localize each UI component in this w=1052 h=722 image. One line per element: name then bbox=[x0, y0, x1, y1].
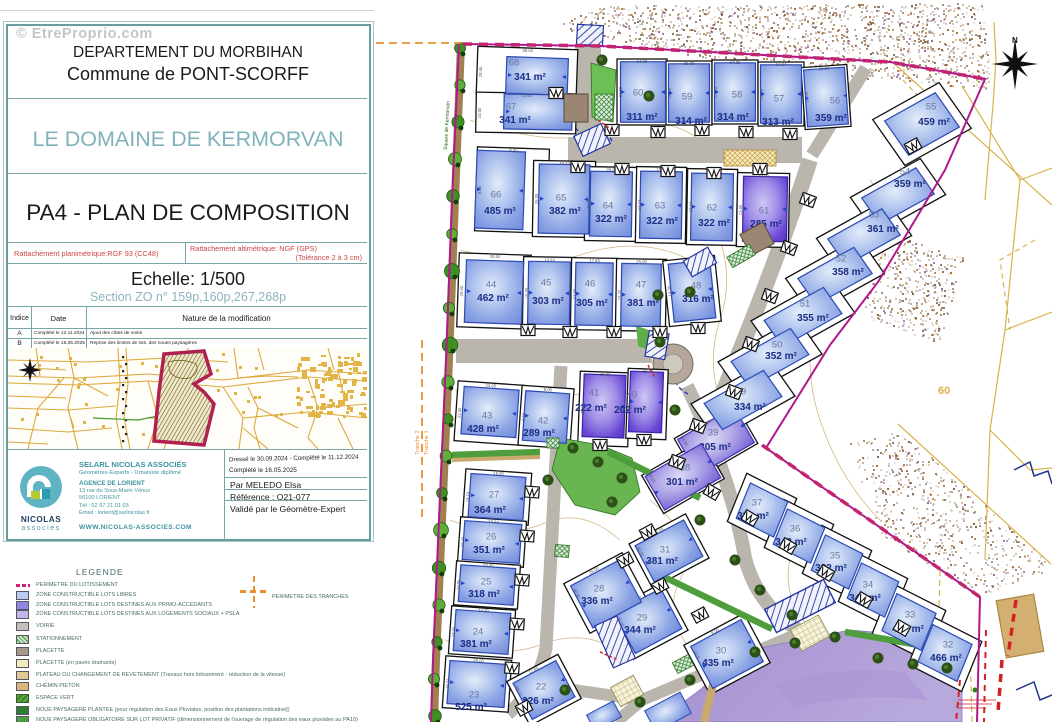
svg-text:355 m²: 355 m² bbox=[797, 313, 829, 324]
svg-text:55: 55 bbox=[926, 102, 937, 113]
svg-text:303 m²: 303 m² bbox=[532, 296, 564, 307]
svg-text:52: 52 bbox=[836, 254, 847, 265]
svg-text:25.00: 25.00 bbox=[636, 259, 647, 264]
svg-text:334 m²: 334 m² bbox=[734, 402, 766, 413]
svg-text:8.00: 8.00 bbox=[544, 387, 553, 393]
svg-text:341 m²: 341 m² bbox=[514, 72, 546, 83]
svg-text:30: 30 bbox=[716, 646, 727, 657]
svg-text:50: 50 bbox=[772, 340, 783, 351]
svg-text:57: 57 bbox=[774, 94, 785, 105]
svg-text:351 m²: 351 m² bbox=[473, 545, 505, 556]
svg-text:28.00: 28.00 bbox=[459, 285, 464, 296]
svg-text:23: 23 bbox=[469, 690, 480, 701]
svg-text:459 m²: 459 m² bbox=[918, 117, 950, 128]
svg-text:33: 33 bbox=[905, 610, 916, 621]
svg-text:381 m²: 381 m² bbox=[627, 298, 659, 309]
svg-text:381 m²: 381 m² bbox=[460, 639, 492, 650]
svg-text:15.55: 15.55 bbox=[493, 471, 504, 477]
svg-text:66: 66 bbox=[491, 190, 502, 201]
svg-text:301 m²: 301 m² bbox=[666, 477, 698, 488]
svg-text:47: 47 bbox=[636, 280, 647, 291]
svg-text:42: 42 bbox=[538, 416, 549, 427]
svg-text:35: 35 bbox=[830, 551, 841, 562]
svg-text:23.00: 23.00 bbox=[477, 107, 482, 118]
svg-text:311 m²: 311 m² bbox=[626, 112, 658, 123]
svg-text:36: 36 bbox=[790, 524, 801, 535]
svg-text:428 m²: 428 m² bbox=[467, 424, 499, 435]
svg-text:Tranche 2: Tranche 2 bbox=[415, 430, 421, 455]
svg-text:17.65: 17.65 bbox=[589, 258, 600, 263]
svg-text:344 m²: 344 m² bbox=[624, 625, 656, 636]
svg-text:26.00: 26.00 bbox=[586, 198, 591, 209]
svg-text:53: 53 bbox=[869, 210, 880, 221]
svg-text:322 m²: 322 m² bbox=[698, 218, 730, 229]
svg-text:8.00: 8.00 bbox=[509, 148, 518, 153]
svg-text:313 m²: 313 m² bbox=[762, 117, 794, 128]
svg-text:358 m²: 358 m² bbox=[832, 267, 864, 278]
svg-text:318 m²: 318 m² bbox=[468, 589, 500, 600]
svg-text:46: 46 bbox=[585, 279, 596, 290]
svg-text:31: 31 bbox=[660, 545, 671, 556]
svg-text:13.05: 13.05 bbox=[521, 93, 532, 98]
svg-text:51: 51 bbox=[800, 299, 811, 310]
svg-text:22: 22 bbox=[536, 682, 547, 693]
svg-text:65: 65 bbox=[556, 193, 567, 204]
svg-text:19.32: 19.32 bbox=[445, 678, 451, 689]
svg-text:43: 43 bbox=[482, 411, 493, 422]
svg-text:28.00: 28.00 bbox=[819, 66, 830, 72]
svg-text:37: 37 bbox=[752, 498, 763, 509]
svg-text:60: 60 bbox=[938, 385, 950, 397]
svg-text:462 m²: 462 m² bbox=[477, 293, 509, 304]
svg-text:13.05: 13.05 bbox=[738, 204, 743, 215]
svg-text:381 m²: 381 m² bbox=[646, 556, 678, 567]
svg-text:41: 41 bbox=[589, 388, 600, 399]
svg-text:19.32: 19.32 bbox=[617, 289, 622, 300]
svg-text:44: 44 bbox=[486, 280, 497, 291]
svg-text:23.00: 23.00 bbox=[457, 407, 463, 418]
svg-text:14.00: 14.00 bbox=[478, 608, 489, 614]
svg-text:485 m²: 485 m² bbox=[484, 206, 516, 217]
svg-text:359 m²: 359 m² bbox=[815, 113, 847, 124]
svg-text:23.00: 23.00 bbox=[483, 563, 494, 569]
svg-text:68: 68 bbox=[509, 58, 520, 69]
svg-text:60: 60 bbox=[633, 88, 644, 99]
svg-text:19.32: 19.32 bbox=[600, 372, 611, 377]
svg-text:26.00: 26.00 bbox=[643, 369, 654, 374]
svg-text:13.05: 13.05 bbox=[456, 579, 462, 590]
svg-text:61: 61 bbox=[759, 206, 770, 217]
svg-text:26: 26 bbox=[486, 532, 497, 543]
svg-text:314 m²: 314 m² bbox=[717, 112, 749, 123]
svg-text:14.24: 14.24 bbox=[465, 491, 471, 502]
svg-text:24: 24 bbox=[473, 627, 484, 638]
svg-text:305 m²: 305 m² bbox=[576, 298, 608, 309]
svg-text:322 m²: 322 m² bbox=[646, 216, 678, 227]
svg-text:14.00: 14.00 bbox=[637, 59, 648, 64]
svg-text:59: 59 bbox=[682, 92, 693, 103]
svg-text:64: 64 bbox=[603, 201, 614, 212]
svg-text:26.00: 26.00 bbox=[628, 398, 633, 409]
svg-text:359 m²: 359 m² bbox=[894, 179, 926, 190]
svg-text:17.65: 17.65 bbox=[730, 60, 741, 65]
svg-text:25: 25 bbox=[481, 577, 492, 588]
svg-text:336 m²: 336 m² bbox=[581, 596, 613, 607]
svg-text:63: 63 bbox=[655, 201, 666, 212]
svg-text:352 m²: 352 m² bbox=[765, 351, 797, 362]
svg-text:Tranche 1: Tranche 1 bbox=[424, 430, 430, 455]
svg-text:54: 54 bbox=[900, 167, 911, 178]
svg-text:34: 34 bbox=[863, 580, 874, 591]
svg-text:29: 29 bbox=[637, 613, 648, 624]
svg-text:341 m²: 341 m² bbox=[499, 115, 531, 126]
svg-text:322 m²: 322 m² bbox=[595, 214, 627, 225]
svg-text:45: 45 bbox=[541, 278, 552, 289]
svg-text:28.00: 28.00 bbox=[490, 254, 501, 259]
svg-text:12.44: 12.44 bbox=[488, 519, 499, 525]
svg-text:364 m²: 364 m² bbox=[474, 505, 506, 516]
svg-text:39: 39 bbox=[708, 428, 719, 439]
svg-text:13.05: 13.05 bbox=[486, 383, 497, 389]
svg-text:58: 58 bbox=[732, 90, 743, 101]
svg-text:466 m²: 466 m² bbox=[930, 653, 962, 664]
svg-text:62: 62 bbox=[707, 203, 718, 214]
svg-text:25.00: 25.00 bbox=[473, 658, 484, 664]
svg-text:361 m²: 361 m² bbox=[867, 224, 899, 235]
svg-text:12.44: 12.44 bbox=[460, 536, 466, 547]
svg-text:19.32: 19.32 bbox=[559, 161, 570, 166]
svg-text:14.24: 14.24 bbox=[776, 62, 787, 67]
svg-text:382 m²: 382 m² bbox=[549, 206, 581, 217]
svg-text:28.00: 28.00 bbox=[478, 66, 483, 77]
svg-text:25.00: 25.00 bbox=[534, 193, 539, 204]
svg-text:14.00: 14.00 bbox=[451, 626, 457, 637]
svg-text:14.24: 14.24 bbox=[544, 257, 555, 262]
svg-text:56: 56 bbox=[830, 96, 841, 107]
svg-text:525 m²: 525 m² bbox=[455, 702, 487, 713]
svg-text:32: 32 bbox=[943, 640, 954, 651]
svg-text:15.55: 15.55 bbox=[524, 287, 529, 298]
svg-text:27: 27 bbox=[489, 490, 500, 501]
svg-text:28: 28 bbox=[594, 584, 605, 595]
svg-text:28.00: 28.00 bbox=[522, 48, 533, 53]
svg-text:25.00: 25.00 bbox=[684, 61, 695, 66]
svg-text:28.00: 28.00 bbox=[804, 91, 810, 102]
svg-text:435 m²: 435 m² bbox=[702, 658, 734, 669]
svg-text:289 m²: 289 m² bbox=[523, 428, 555, 439]
